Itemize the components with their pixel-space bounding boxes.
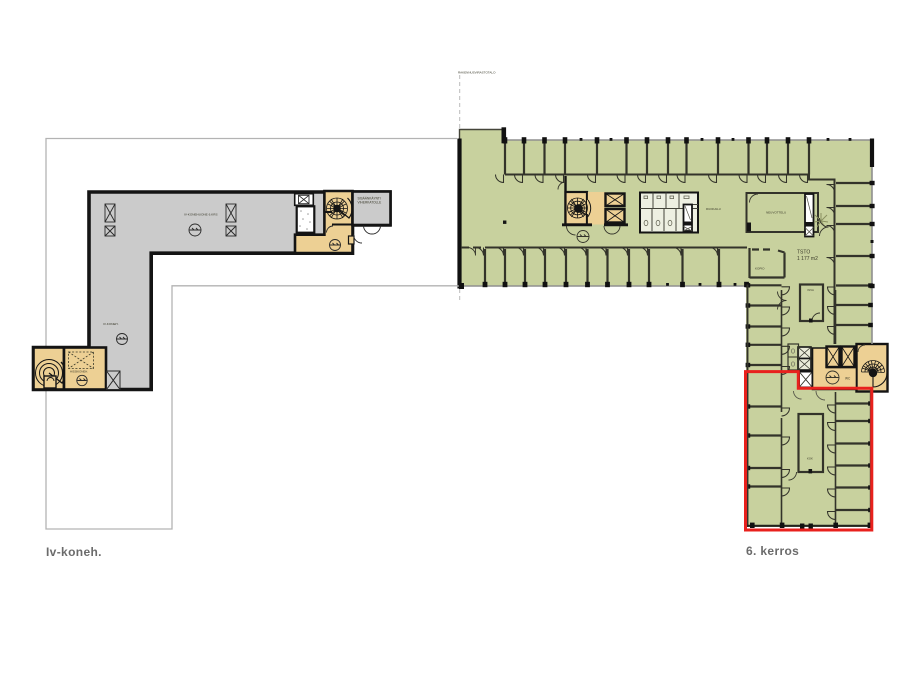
svg-text:HISSIKONEH.: HISSIKONEH. (70, 370, 88, 374)
svg-text:WC: WC (845, 377, 851, 381)
svg-text:IV-KONEH.: IV-KONEH. (103, 322, 119, 326)
svg-text:KOK: KOK (807, 457, 813, 461)
svg-text:TSTO: TSTO (797, 250, 810, 256)
svg-text:KOPIO: KOPIO (755, 266, 765, 270)
svg-text:Iv-koneh.: Iv-koneh. (46, 545, 102, 559)
svg-text:INVA: INVA (808, 288, 814, 292)
svg-text:RUOKAILU: RUOKAILU (706, 207, 721, 211)
svg-text:RAKENNUSVIRASTOTALO: RAKENNUSVIRASTOTALO (458, 71, 496, 75)
svg-text:NEUVOTTELU: NEUVOTTELU (766, 211, 786, 215)
svg-text:IV-KONEHUONE 6.KRS: IV-KONEHUONE 6.KRS (184, 213, 218, 217)
svg-text:VIHERKATOLLE: VIHERKATOLLE (358, 201, 382, 205)
svg-text:1 177 m2: 1 177 m2 (797, 256, 818, 262)
svg-text:6. kerros: 6. kerros (746, 544, 799, 558)
